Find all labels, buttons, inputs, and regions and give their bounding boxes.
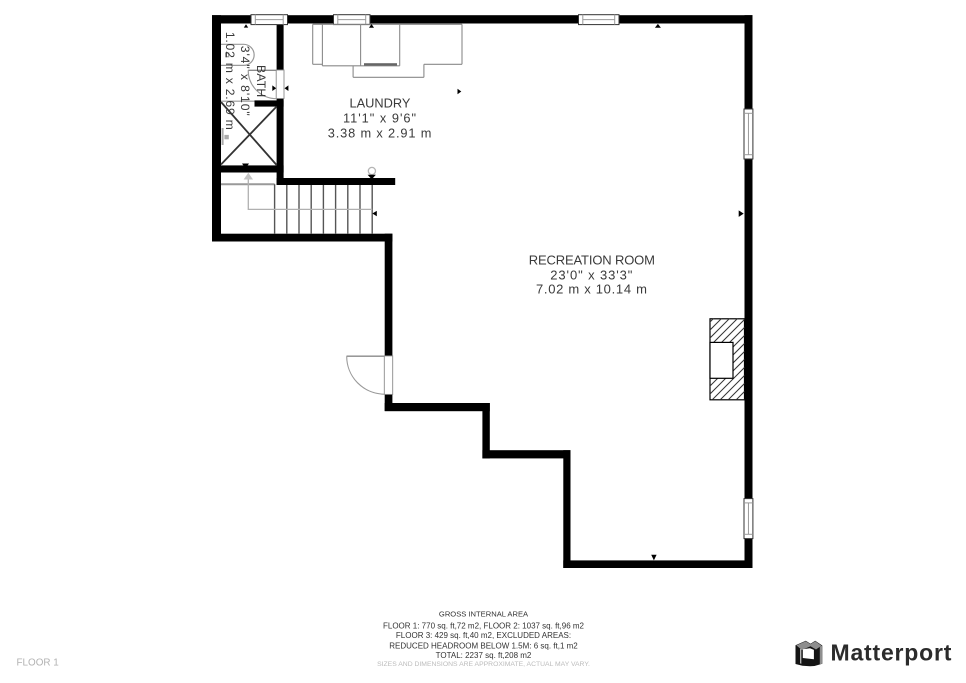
- svg-text:FLOOR 3: 429 sq. ft,40 m2, EXC: FLOOR 3: 429 sq. ft,40 m2, EXCLUDED AREA…: [396, 631, 571, 640]
- svg-text:SIZES AND DIMENSIONS ARE APPRO: SIZES AND DIMENSIONS ARE APPROXIMATE, AC…: [377, 661, 590, 668]
- svg-text:FLOOR 1: 770 sq. ft,72 m2, FLO: FLOOR 1: 770 sq. ft,72 m2, FLOOR 2: 1037…: [383, 621, 585, 630]
- svg-text:11'1" x 9'6": 11'1" x 9'6": [343, 111, 417, 126]
- svg-text:GROSS INTERNAL AREA: GROSS INTERNAL AREA: [439, 610, 529, 619]
- svg-text:REDUCED HEADROOM BELOW 1.5M: 6: REDUCED HEADROOM BELOW 1.5M: 6 sq. ft,1 …: [389, 641, 578, 650]
- svg-text:LAUNDRY: LAUNDRY: [350, 95, 411, 110]
- svg-text:23'0" x 33'3": 23'0" x 33'3": [550, 268, 633, 283]
- svg-text:FLOOR 1: FLOOR 1: [17, 658, 60, 669]
- svg-text:TOTAL: 2237 sq. ft,208 m2: TOTAL: 2237 sq. ft,208 m2: [436, 651, 532, 660]
- svg-text:7.02 m x 10.14 m: 7.02 m x 10.14 m: [536, 281, 648, 296]
- svg-text:1.02 m x 2.69 m: 1.02 m x 2.69 m: [223, 32, 237, 131]
- svg-text:RECREATION ROOM: RECREATION ROOM: [529, 253, 655, 268]
- svg-text:BATH: BATH: [254, 65, 268, 97]
- svg-text:3'4" x 8'10": 3'4" x 8'10": [238, 46, 252, 117]
- svg-text:Matterport: Matterport: [831, 640, 953, 666]
- svg-text:3.38 m x 2.91 m: 3.38 m x 2.91 m: [328, 126, 433, 141]
